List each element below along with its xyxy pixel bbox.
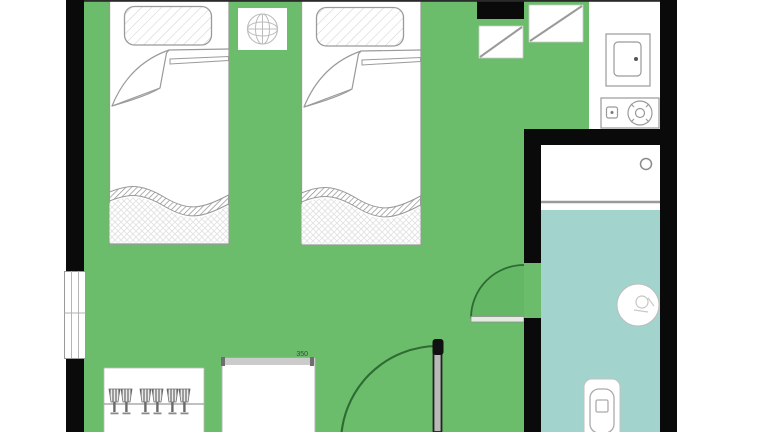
svg-text:350: 350 — [296, 351, 308, 358]
